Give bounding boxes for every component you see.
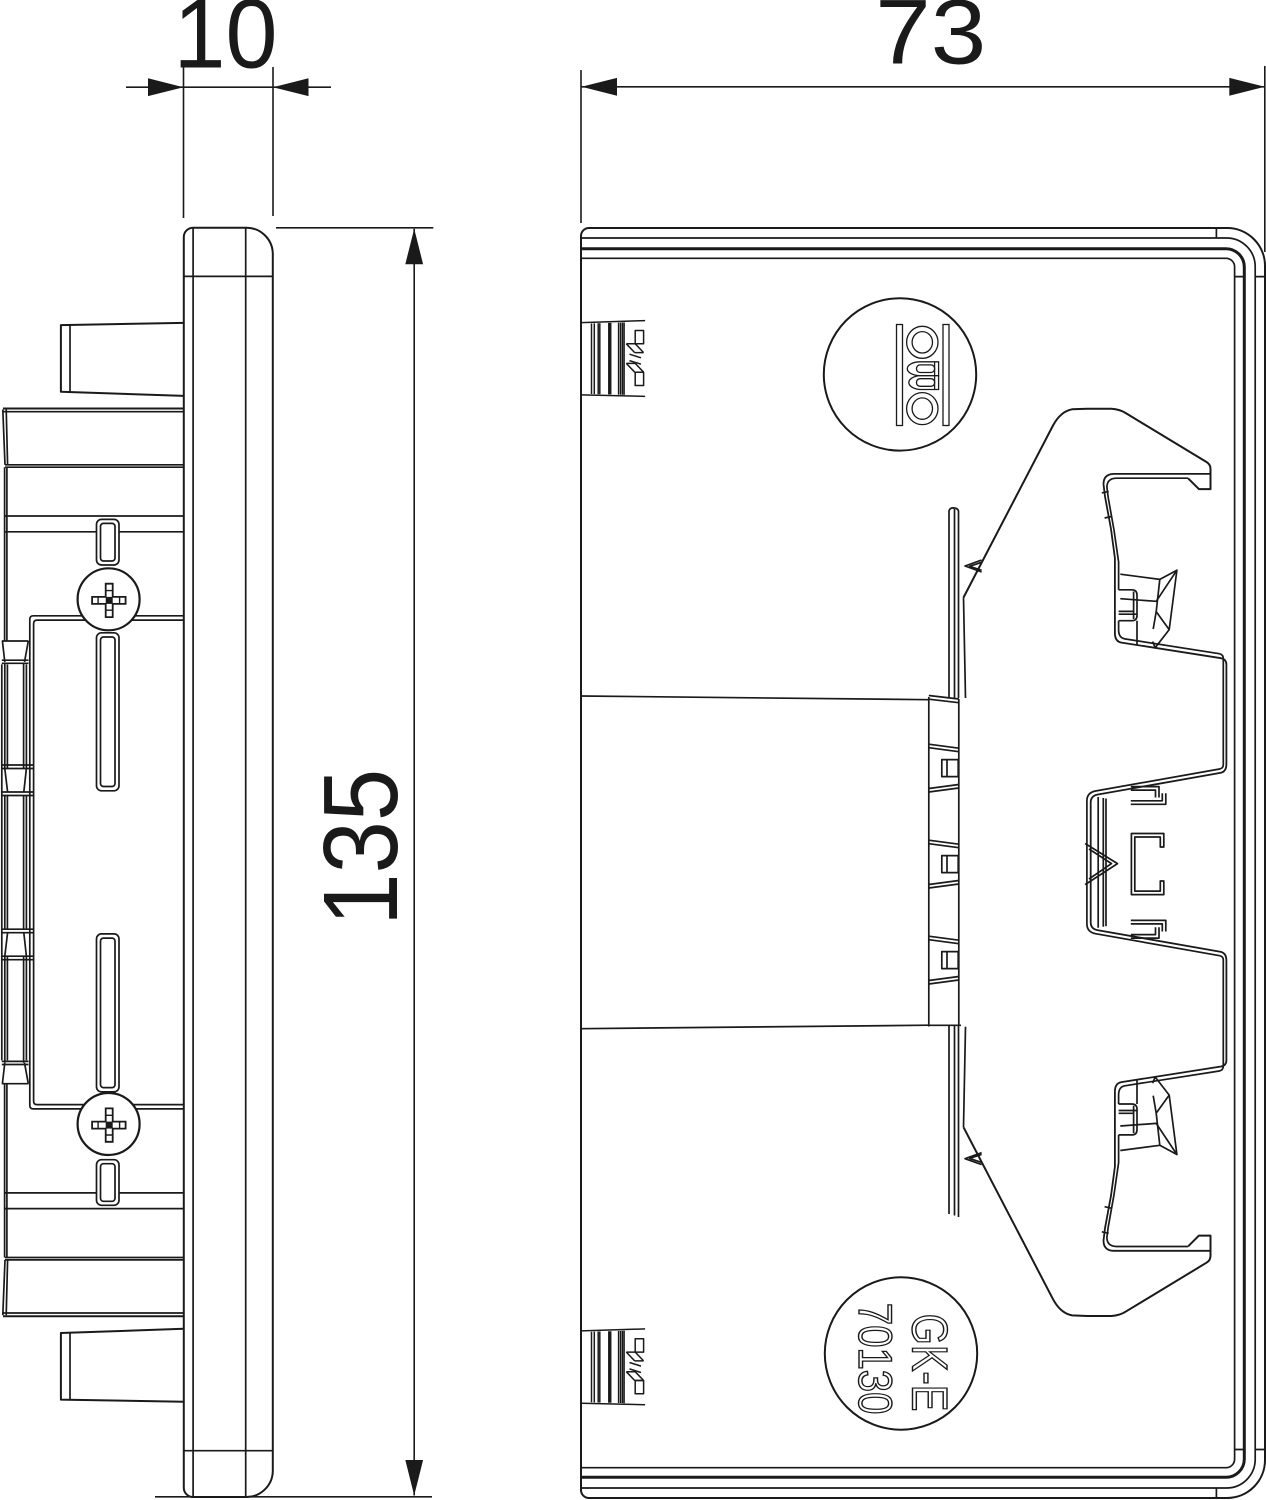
svg-text:10: 10 <box>174 0 278 89</box>
svg-text:73: 73 <box>875 0 986 84</box>
svg-text:70130: 70130 <box>849 1303 902 1415</box>
svg-text:GK-E: GK-E <box>902 1314 959 1412</box>
svg-text:135: 135 <box>302 769 420 926</box>
